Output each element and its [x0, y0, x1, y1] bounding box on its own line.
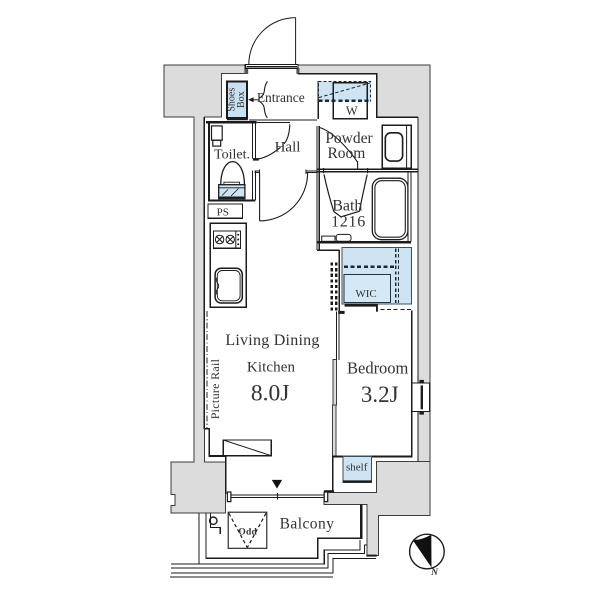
svg-text:N: N: [430, 568, 439, 578]
svg-text:Bath: Bath: [332, 198, 362, 215]
svg-text:Living Dining: Living Dining: [225, 332, 319, 349]
svg-text:8.0J: 8.0J: [251, 380, 290, 406]
svg-text:3.2J: 3.2J: [361, 382, 399, 407]
svg-text:Toilet.: Toilet.: [214, 147, 250, 162]
svg-text:Room: Room: [327, 145, 365, 162]
svg-text:Box: Box: [236, 91, 247, 108]
svg-text:PS: PS: [217, 207, 229, 219]
svg-text:Hall: Hall: [275, 140, 301, 156]
svg-text:shelf: shelf: [346, 462, 368, 474]
svg-text:Odd: Odd: [238, 527, 257, 537]
svg-text:Kitchen: Kitchen: [247, 360, 296, 376]
svg-text:Picture Rail: Picture Rail: [208, 358, 222, 419]
svg-text:Bedroom: Bedroom: [347, 359, 409, 378]
svg-text:W: W: [346, 104, 358, 118]
svg-text:1216: 1216: [331, 214, 366, 231]
svg-text:Balcony: Balcony: [280, 515, 335, 532]
svg-text:WIC: WIC: [355, 288, 376, 300]
svg-text:Entrance: Entrance: [257, 90, 305, 105]
